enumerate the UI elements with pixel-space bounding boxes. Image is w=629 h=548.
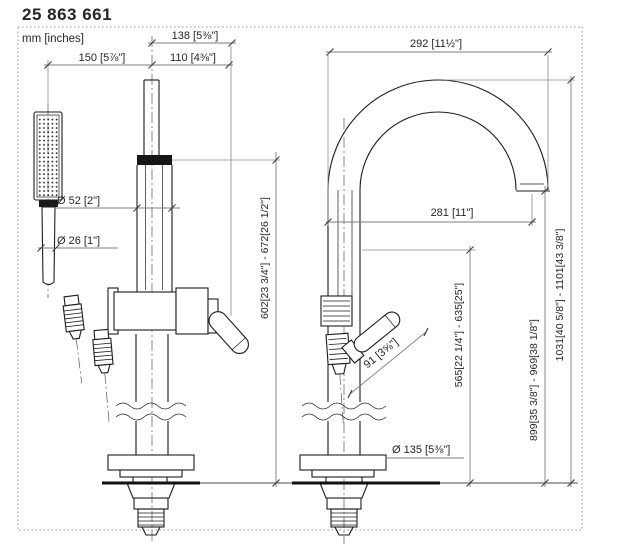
spout-outer-arc (328, 80, 548, 190)
dim-hand-shower-offset: 150 [5⅞"] (79, 52, 126, 64)
units-note: mm [inches] (22, 33, 84, 45)
dim-lever-offset: 110 [4⅜"] (170, 52, 216, 64)
dim-height-body: 565[22 1/4"] - 635[25"] (453, 283, 465, 387)
cross-arm (114, 292, 176, 330)
shower-holder-band (137, 155, 172, 165)
dim-spout-front-width: 138 [5⅜"] (172, 30, 219, 42)
dimension-ticks (38, 40, 575, 487)
dimension-lines (38, 43, 571, 487)
dim-base-diameter: Ø 135 [5⅜"] (392, 444, 450, 456)
spout-inner-arc (360, 112, 516, 190)
dim-hand-shower-diameter: Ø 26 [1"] (57, 235, 100, 247)
technical-drawing-page: 25 863 661 mm [inches] 150 [5⅞"] 110 [4⅜… (0, 0, 629, 548)
dim-height-total: 1031[40 5/8"] - 1101[43 3/8"] (554, 229, 566, 362)
extension-lines (48, 46, 575, 316)
dim-outlet-projection: 281 [11"] (431, 207, 474, 219)
base-plate-side (300, 455, 386, 470)
faucet-dimension-drawing: 25 863 661 mm [inches] 150 [5⅞"] 110 [4⅜… (0, 0, 629, 548)
base-plate-front (108, 455, 194, 470)
riser-pipe (137, 80, 172, 293)
front-view (34, 80, 252, 422)
shower-nut (39, 200, 58, 207)
column-lower (136, 421, 360, 455)
product-number: 25 863 661 (22, 5, 112, 24)
dim-height-spout: 899[35 3/8"] - 969[38 1/8"] (528, 319, 540, 441)
front-body (108, 288, 252, 357)
dim-riser-diameter: Ø 52 [2"] (57, 195, 100, 207)
break-lines (116, 403, 386, 420)
dim-height-hand-shower: 602[23 3/4"] - 672[26 1/2"] (259, 197, 271, 319)
dim-spout-reach: 292 [11½"] (410, 38, 462, 50)
hose-connector-1 (62, 295, 91, 385)
valve-block (176, 288, 208, 334)
hose-connector-2 (92, 329, 118, 422)
spray-face-dots (38, 116, 58, 196)
base-front (108, 455, 194, 535)
thread-section-upper (321, 296, 352, 326)
base-side (300, 455, 386, 535)
